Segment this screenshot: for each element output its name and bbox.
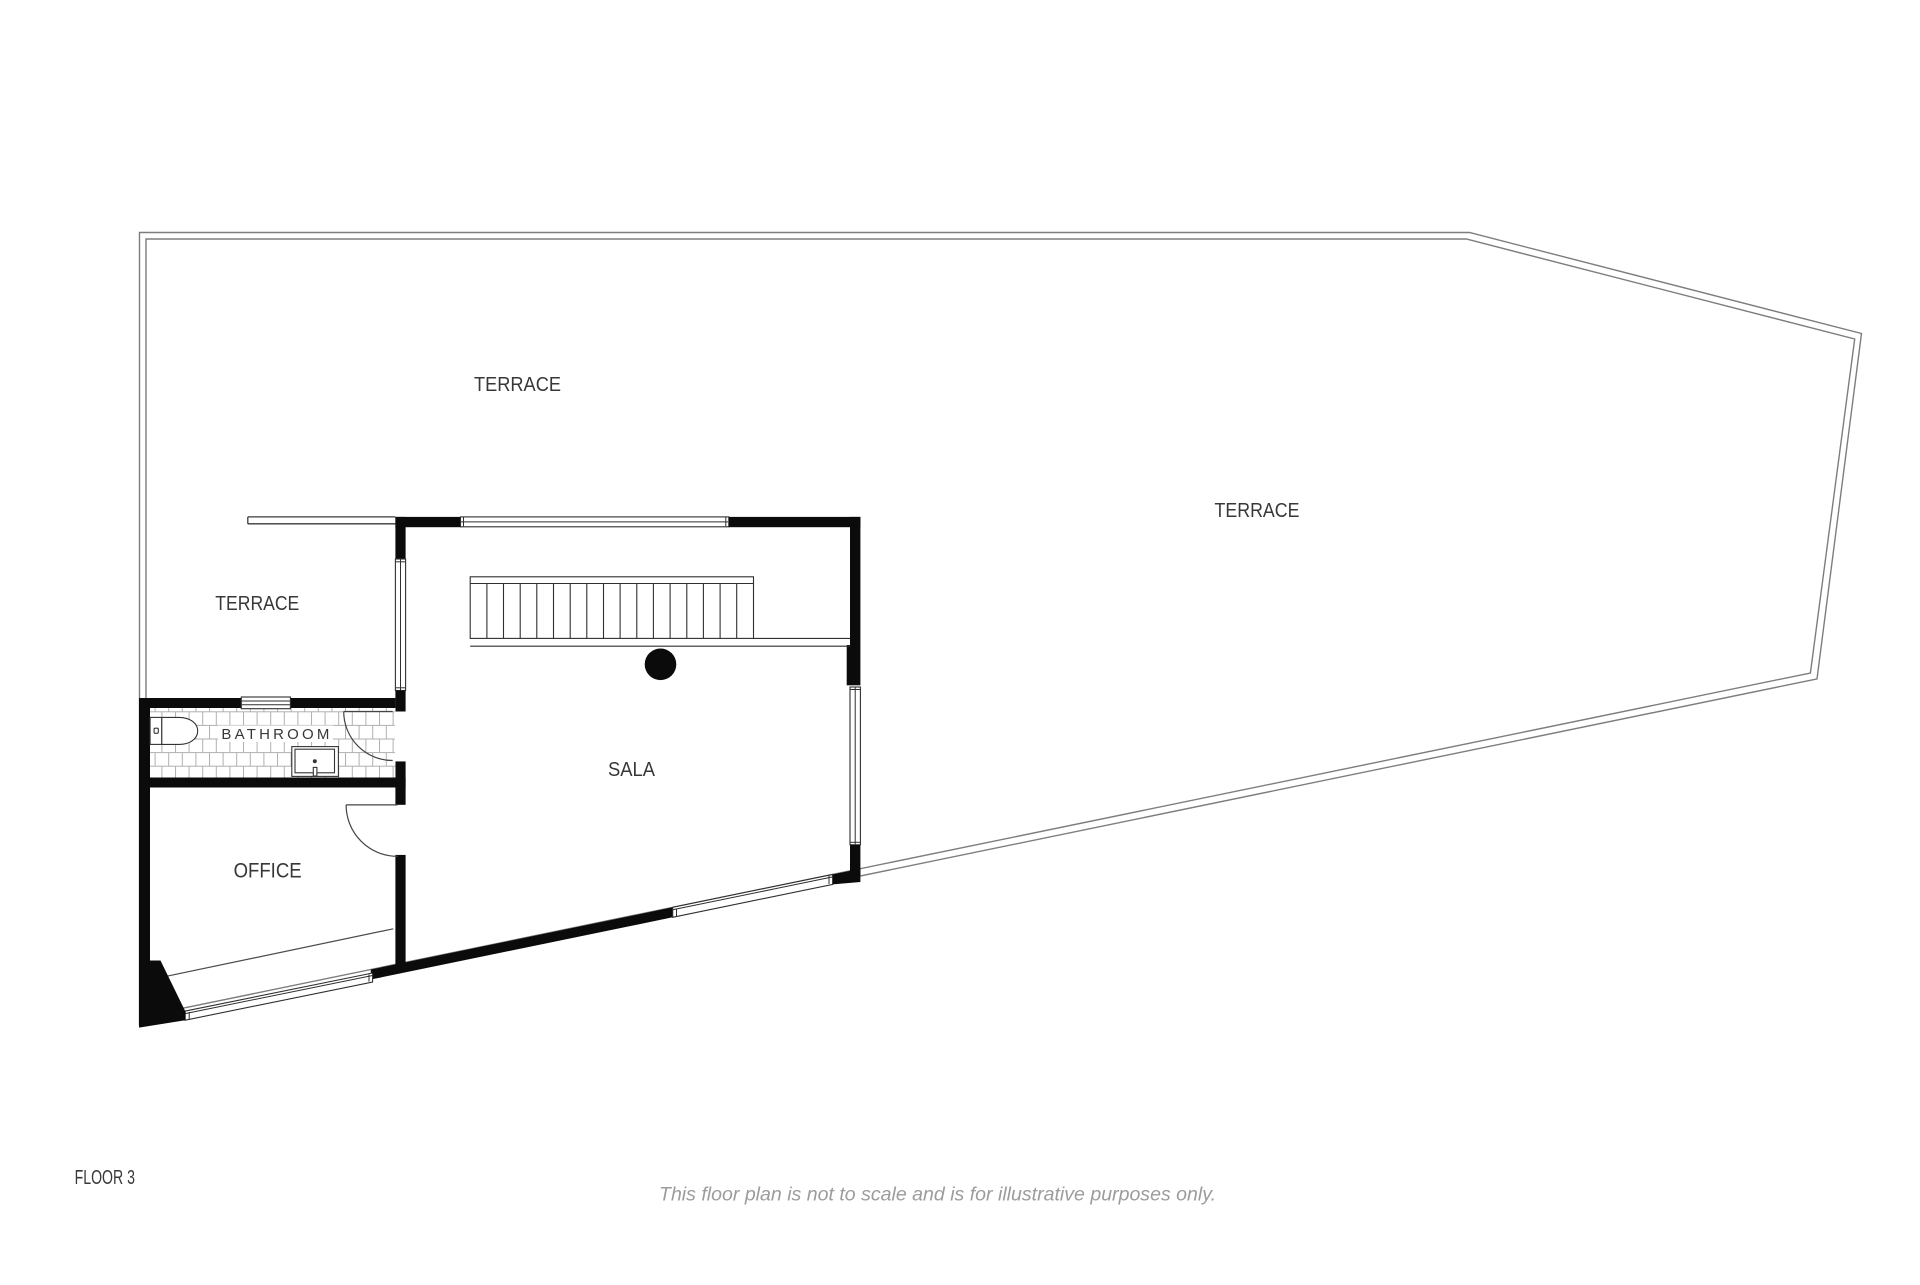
svg-text:OFFICE: OFFICE bbox=[234, 859, 302, 883]
svg-text:TERRACE: TERRACE bbox=[1215, 499, 1300, 522]
svg-text:TERRACE: TERRACE bbox=[474, 373, 561, 396]
svg-text:BATHROOM: BATHROOM bbox=[221, 726, 329, 743]
svg-text:This floor plan is not to scal: This floor plan is not to scale and is f… bbox=[659, 1184, 1216, 1206]
svg-text:TERRACE: TERRACE bbox=[215, 592, 299, 615]
svg-text:FLOOR 3: FLOOR 3 bbox=[75, 1167, 135, 1189]
svg-text:SALA: SALA bbox=[608, 758, 655, 781]
